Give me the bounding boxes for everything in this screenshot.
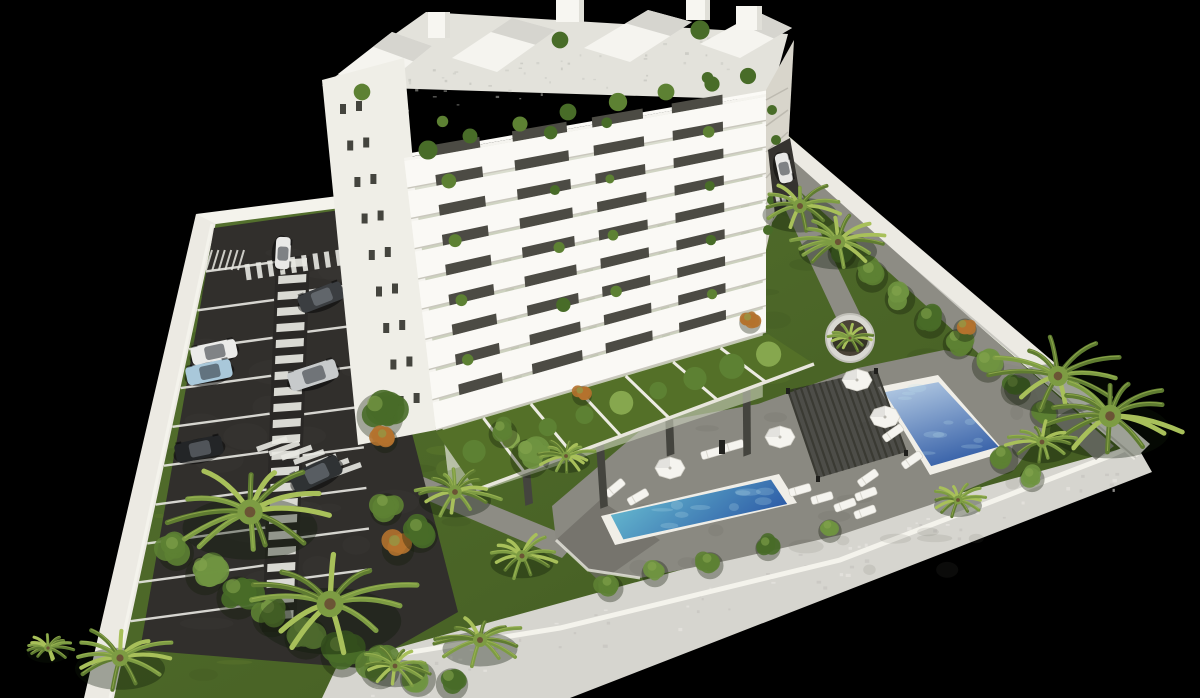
parasol <box>655 457 685 479</box>
roof-terrace-plant <box>704 76 719 91</box>
balcony-plant <box>437 116 448 127</box>
roof-terrace-plant <box>463 129 478 144</box>
garden-hedge <box>756 342 781 367</box>
balcony-plant <box>705 181 715 191</box>
roof-terrace-plant <box>609 93 627 111</box>
balcony-plant <box>441 174 456 189</box>
garden-hedge <box>575 406 593 424</box>
garden-hedge <box>649 382 667 400</box>
balcony-plant <box>556 298 570 312</box>
balcony-plant <box>550 185 560 195</box>
balcony-plant <box>703 126 715 138</box>
roof-terrace-plant <box>658 84 675 101</box>
shower-post <box>719 440 725 454</box>
balcony-plant <box>601 117 612 128</box>
roof-terrace-plant <box>512 116 527 131</box>
shrub <box>953 319 976 342</box>
garden-hedge <box>539 418 557 436</box>
roof-chimney <box>736 6 762 30</box>
balcony-plant <box>608 230 619 241</box>
balcony-plant <box>462 354 473 365</box>
balcony-plant <box>449 234 462 247</box>
roof-terrace-plant <box>560 104 577 121</box>
garden-hedge <box>462 440 485 463</box>
balcony-plant <box>456 294 468 306</box>
roof-chimney <box>686 0 710 20</box>
garden-hedge <box>609 391 633 415</box>
balcony-plant <box>544 126 557 139</box>
architectural-render <box>0 0 1200 698</box>
round-planter <box>826 314 874 362</box>
parasol <box>842 369 872 391</box>
garden-hedge <box>683 367 706 390</box>
roof-chimney <box>428 12 450 38</box>
render-viewport <box>0 0 1200 698</box>
balcony-plant <box>707 289 717 299</box>
roof-terrace-plant <box>690 20 709 39</box>
balcony-plant <box>554 242 565 253</box>
balcony-plant <box>763 225 773 235</box>
balcony-plant <box>610 286 621 297</box>
roof-chimney <box>556 0 584 22</box>
parasol <box>765 426 795 448</box>
balcony-plant <box>767 105 777 115</box>
roof-terrace-plant <box>740 68 756 84</box>
shrub <box>642 560 669 587</box>
balcony-plant <box>771 135 781 145</box>
roof-terrace-plant <box>354 84 371 101</box>
balcony-plant <box>706 235 716 245</box>
parasol <box>870 406 900 428</box>
garden-hedge <box>719 354 744 379</box>
shrub <box>818 520 841 543</box>
balcony-plant <box>605 174 614 183</box>
roof-terrace-plant <box>552 32 569 49</box>
roof-terrace-plant <box>418 140 437 159</box>
